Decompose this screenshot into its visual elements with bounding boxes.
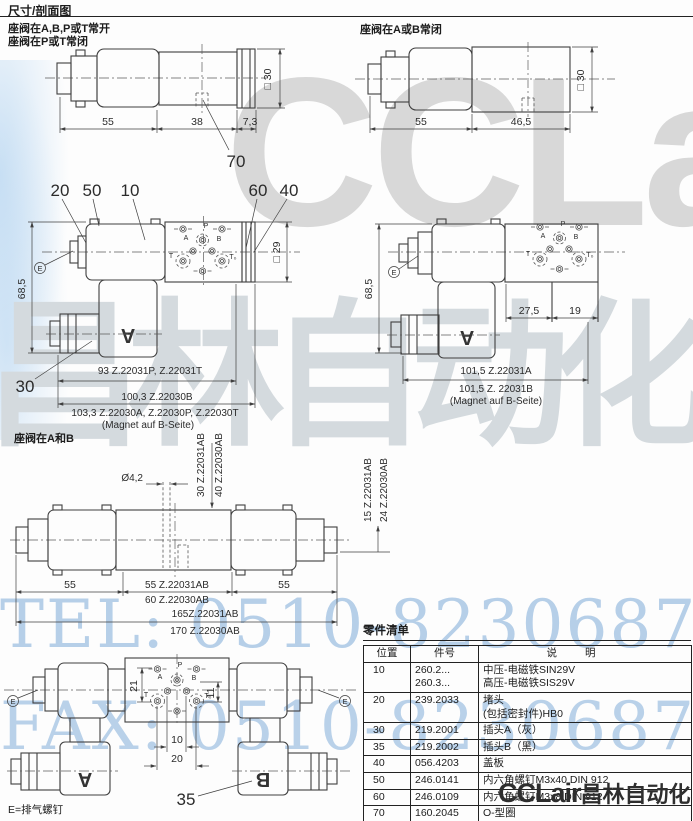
drawing-side-view-closed: 55 46,5 □ 30 [355,42,615,133]
pos-cell: 50 [373,774,406,788]
dim-46-5: 46,5 [511,116,532,128]
dim-sq30: □ 30 [262,68,274,89]
drawing-section-magnet-b: P A B T T₀ E 68,5 27,5 19 A 101,5 [363,219,625,407]
label-15-z22031ab: 15 Z.22031AB [363,458,374,522]
table-row: 10 260.2...260.3... 中压-电磁铁SIN29V高压-电磁铁SI… [364,662,692,692]
dim-sq30: □ 30 [575,69,587,90]
port-a: A [541,233,546,240]
drawing-side-view-open: 55 38 7,3 □ 30 70 [45,44,285,171]
callout-10: 10 [121,181,140,200]
part-cell: 056.4203 [415,757,474,771]
callout-20: 20 [51,181,70,200]
datasheet-page: CCLair 昌林自动化 TEL: 0510-82306871 FAX: 051… [0,0,693,821]
dim-dia-4-2: Ø4,2 [121,473,143,484]
callout-35: 35 [177,790,196,809]
port-p: P [561,221,566,228]
dim-55-left: 55 [64,579,76,591]
table-row: 40 056.4203 盖板 [364,756,692,773]
desc-cell: O-型圈 [483,807,687,821]
coil-letter-a: A [121,324,135,346]
dim-38: 38 [191,116,203,128]
dim-55-right: 55 [278,579,290,591]
port-t0: T₀ [229,254,236,261]
dim-55: 55 [102,116,114,128]
vent-label: E [37,264,42,273]
label-30-z22031ab: 30 Z.22031AB [196,433,207,497]
pos-cell: 10 [373,664,406,678]
drawing-double-solenoid: E E P A B T T₀ 21 11 [4,654,358,809]
desc-cell: 中压-电磁铁SIN29V [483,664,687,678]
drawing-section-magnet-a: 20 50 10 60 40 P A B T T₀ E [16,181,300,431]
port-t0: T₀ [586,252,593,259]
pos-cell: 35 [373,741,406,755]
desc-cell: 插头B（黑） [483,741,687,755]
dim-sq29: □ 29 [271,241,283,262]
part-cell: 219.2002 [415,741,474,755]
callout-40: 40 [280,181,299,200]
part-cell: 160.2045 [415,807,474,821]
dim-68-5: 68,5 [363,279,375,300]
port-a: A [184,235,189,242]
part-cell: 219.2001 [415,724,474,738]
port-t: T [144,692,149,699]
drawing-double-top: Ø4,2 30 Z.22031AB 40 Z.22030AB 15 Z.2203… [10,433,390,637]
dim-55-z22031ab: 55 Z.22031AB [145,580,209,591]
blue-watermark-strip [0,60,70,440]
dim-20: 20 [171,753,183,765]
pos-cell: 20 [373,694,406,708]
vent-label: E [391,268,396,277]
part-cell: 260.2... [415,664,474,678]
magnet-note: (Magnet auf B-Seite) [450,396,542,407]
col-description: 说明 [479,646,692,663]
company-logo: CCLair 昌林自动化 [498,777,691,809]
magnet-note: (Magnet auf B-Seite) [102,420,194,431]
port-p: P [178,662,183,669]
len-101-5b: 101,5 Z. 22031B [459,384,533,395]
callout-60: 60 [249,181,268,200]
brand-watermark: CCLair [225,30,693,274]
len-100-3: 100,3 Z.22030B [121,392,192,403]
dim-19: 19 [569,305,581,317]
pos-cell: 30 [373,724,406,738]
logo-cjk: 昌林自动化 [581,777,691,809]
col-position: 位置 [364,646,411,663]
dim-27-5: 27,5 [519,305,540,317]
len-103-3: 103,3 Z.22030A, Z.22030P, Z.22030T [71,408,238,419]
dim-21: 21 [128,680,140,692]
dim-165: 165Z.22031AB [172,609,239,620]
desc-cell: (包括密封件)HB0 [483,708,687,722]
pos-cell: 40 [373,757,406,771]
callout-30: 30 [16,377,35,396]
dim-68-5: 68,5 [16,279,28,300]
table-header-row: 位置 件号 说明 [364,646,692,663]
desc-cell: 插头A（灰） [483,724,687,738]
coil-letter-a: A [460,326,474,348]
callout-50: 50 [83,181,102,200]
port-b: B [192,675,197,682]
logo-latin: CCLair [498,778,581,809]
brand-cn-watermark: 昌林自动化 [0,248,693,477]
pos-cell: 60 [373,791,406,805]
port-t: T [169,253,174,260]
table-row: 30 219.2001 插头A（灰） [364,723,692,740]
port-a: A [158,674,163,681]
label-24-z22030ab: 24 Z.22030AB [379,458,390,522]
title-rule [0,16,693,17]
callout-70: 70 [227,152,246,171]
port-t0: T₀ [204,693,211,700]
dim-7-3: 7,3 [243,116,258,128]
len-93: 93 Z.22031P, Z.22031T [98,366,202,377]
caption-top-right: 座阀在A或B常闭 [360,21,442,37]
caption-top-left-2: 座阀在P或T常闭 [8,33,88,49]
coil-letter-b: B [256,768,270,790]
part-cell: 246.0109 [415,791,474,805]
desc-cell: 堵头 [483,694,687,708]
dim-55: 55 [415,116,427,128]
col-part-no: 件号 [411,646,479,663]
vent-label-left: E [10,697,15,706]
vent-note: E=排气螺钉 [8,802,63,817]
pos-cell: 70 [373,807,406,821]
dim-170: 170 Z.22030AB [170,626,240,637]
table-row: 20 239.2033 堵头(包括密封件)HB0 [364,692,692,722]
port-p: P [204,223,209,230]
part-cell: 246.0141 [415,774,474,788]
port-b: B [574,234,579,241]
desc-cell: 盖板 [483,757,687,771]
dim-11: 11 [205,687,217,698]
caption-mid: 座阀在A和B [14,430,74,446]
label-40-z22030ab: 40 Z.22030AB [214,433,225,497]
len-101-5a: 101,5 Z.22031A [460,366,531,377]
vent-label-right: E [342,697,347,706]
port-b: B [217,236,222,243]
part-cell: 260.3... [415,677,474,691]
dim-10: 10 [171,734,183,746]
part-cell: 239.2033 [415,694,474,708]
desc-cell: 高压-电磁铁SIS29V [483,677,687,691]
port-t: T [526,251,531,258]
dim-60-z22030ab: 60 Z.22030AB [145,595,209,606]
coil-letter-a: A [78,768,92,790]
table-row: 35 219.2002 插头B（黑） [364,739,692,756]
parts-list-title: 零件清单 [363,622,691,641]
